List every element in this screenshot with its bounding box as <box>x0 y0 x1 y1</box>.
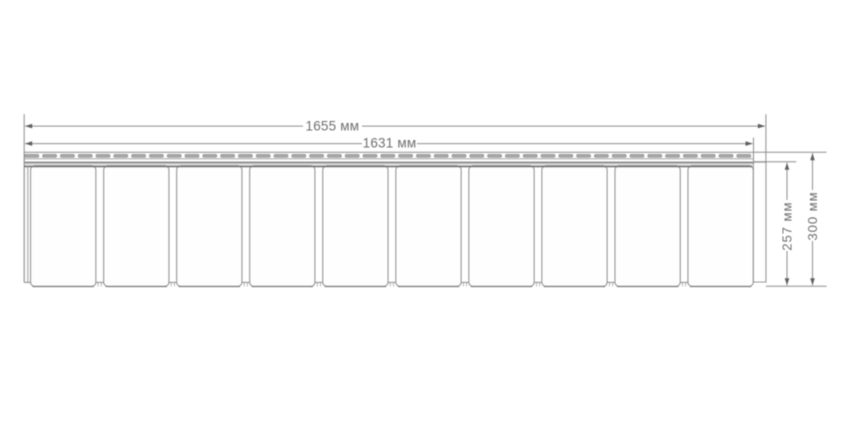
svg-text:300 мм: 300 мм <box>805 191 820 240</box>
svg-text:1631 мм: 1631 мм <box>363 136 417 151</box>
svg-text:257 мм: 257 мм <box>780 202 795 251</box>
svg-text:1655 мм: 1655 мм <box>306 119 360 134</box>
